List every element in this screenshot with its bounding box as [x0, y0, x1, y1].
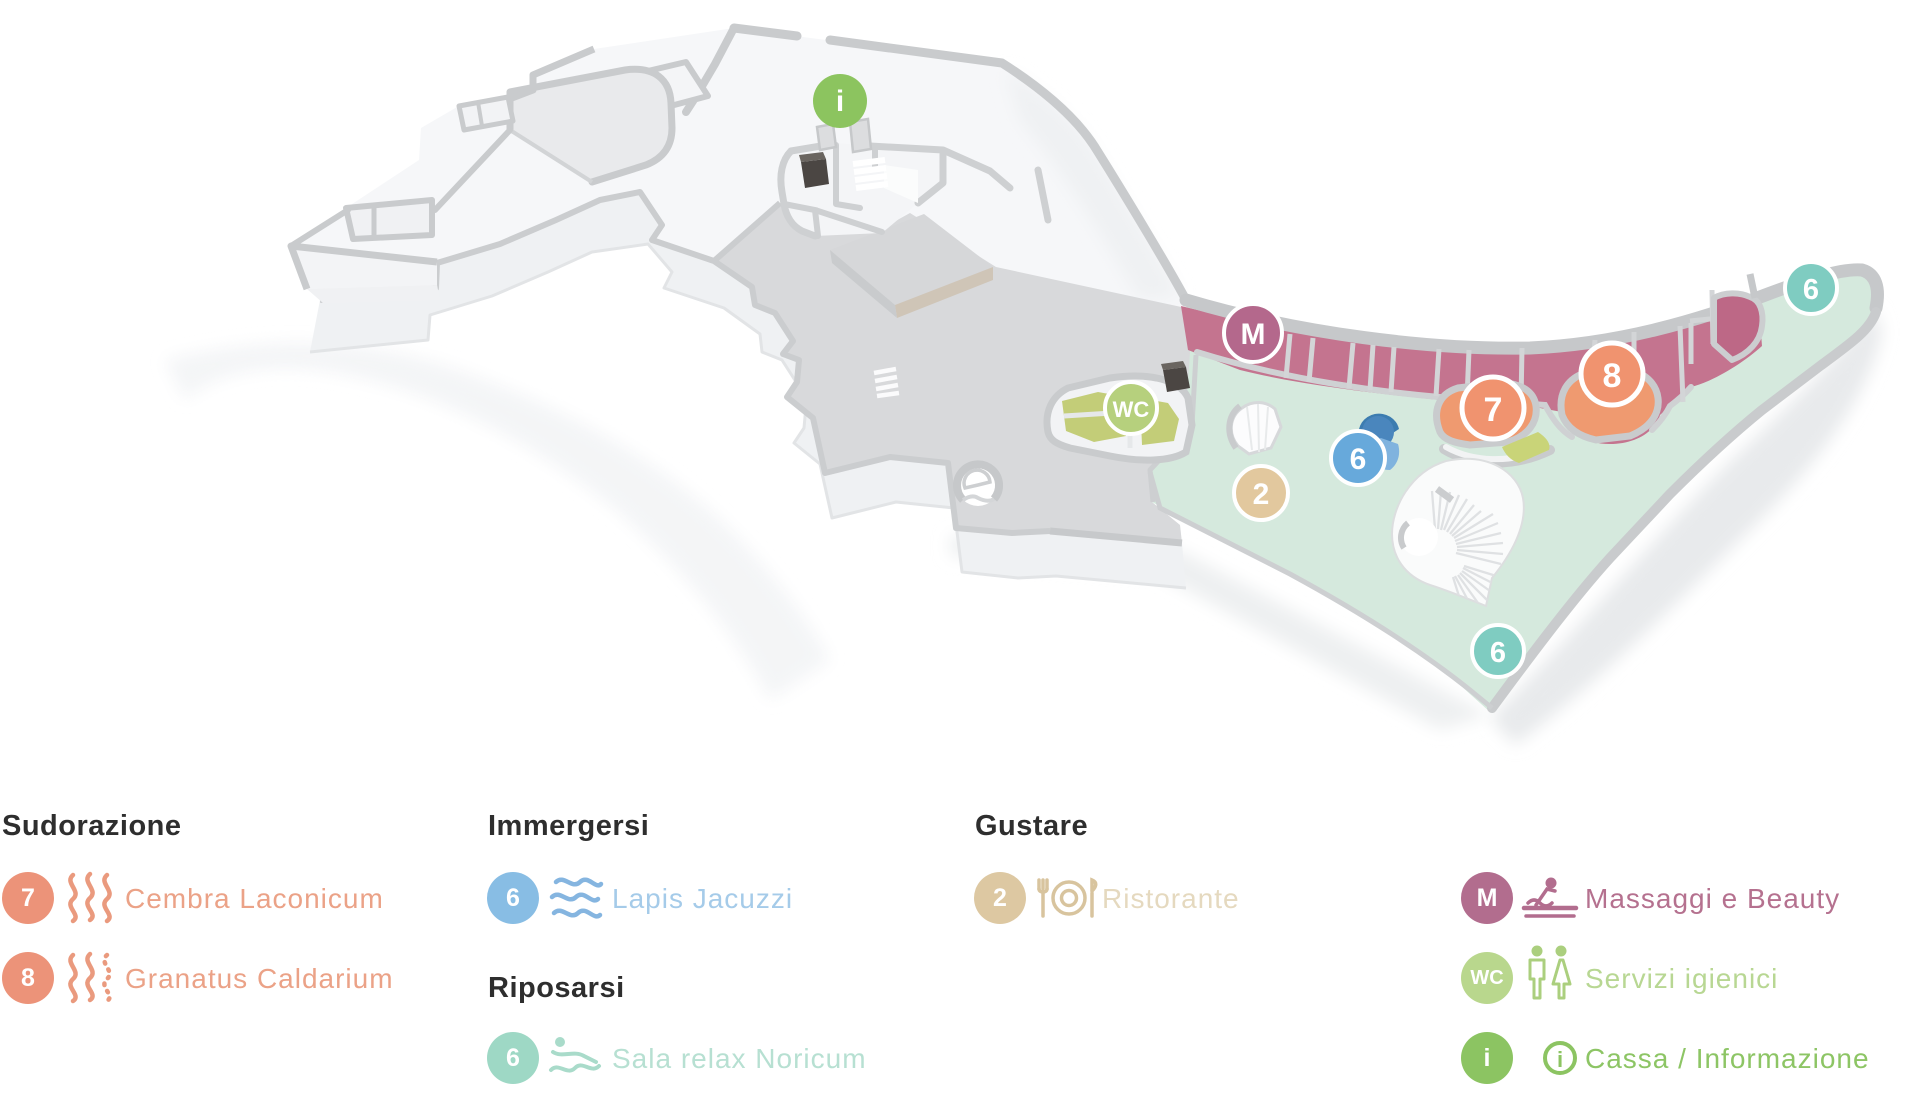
svg-text:i: i	[1557, 1047, 1563, 1072]
